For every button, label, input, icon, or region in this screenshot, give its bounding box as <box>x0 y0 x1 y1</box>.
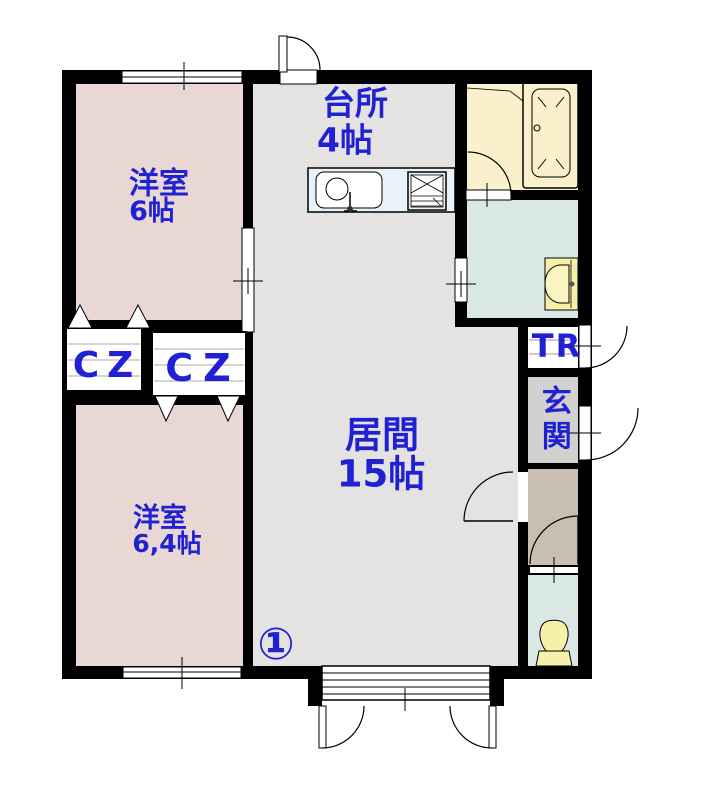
porch-step-right <box>490 666 504 706</box>
unit-number-label: ① <box>257 622 294 668</box>
floor-plan: 洋室 6帖 台所 4帖 居間 15帖 洋室 6,4帖 CZ CZ TR 玄関 ① <box>0 0 718 800</box>
stove-inner <box>411 175 443 207</box>
porch-door-arc-left <box>322 706 364 748</box>
wall-entrance-bottom <box>518 463 592 469</box>
kitchen-counter <box>308 168 455 212</box>
toilet-bowl <box>540 620 568 651</box>
washbasin-bowl <box>545 265 569 303</box>
trunk-room-label: TR <box>532 330 582 364</box>
entrance-door-arc <box>586 408 638 460</box>
threshold-bath-door <box>466 190 511 200</box>
wall-trunk-bottom <box>518 368 592 377</box>
porch-deck <box>322 666 490 700</box>
bedroom2-size-label: 6,4帖 <box>132 531 201 557</box>
kitchen-door-arc <box>287 37 320 70</box>
living-name-label: 居間 <box>345 417 419 456</box>
porch-door-leaf-left <box>319 706 326 748</box>
washbasin <box>545 258 578 310</box>
kitchen-door-leaf <box>279 36 287 72</box>
porch-step-left <box>308 666 322 706</box>
faucet-knob <box>347 206 353 212</box>
toilet-tank <box>536 651 572 666</box>
bedroom1-size-label: 6帖 <box>129 198 175 226</box>
entrance-label: 玄関 <box>537 385 569 455</box>
porch-door-leaf-right <box>489 706 496 748</box>
kitchen-size-label: 4帖 <box>317 124 373 159</box>
porch <box>322 666 490 711</box>
wall-washroom-bottom <box>455 318 592 327</box>
toilet <box>536 620 572 666</box>
closet-left-label: CZ <box>73 347 142 385</box>
doorway-hall-living <box>518 472 528 522</box>
porch-door-arc-right <box>450 706 492 748</box>
closet-right-label: CZ <box>165 349 240 389</box>
kitchen-name-label: 台所 <box>322 87 388 122</box>
living-size-label: 15帖 <box>337 456 426 495</box>
washbasin-faucet <box>570 282 575 287</box>
